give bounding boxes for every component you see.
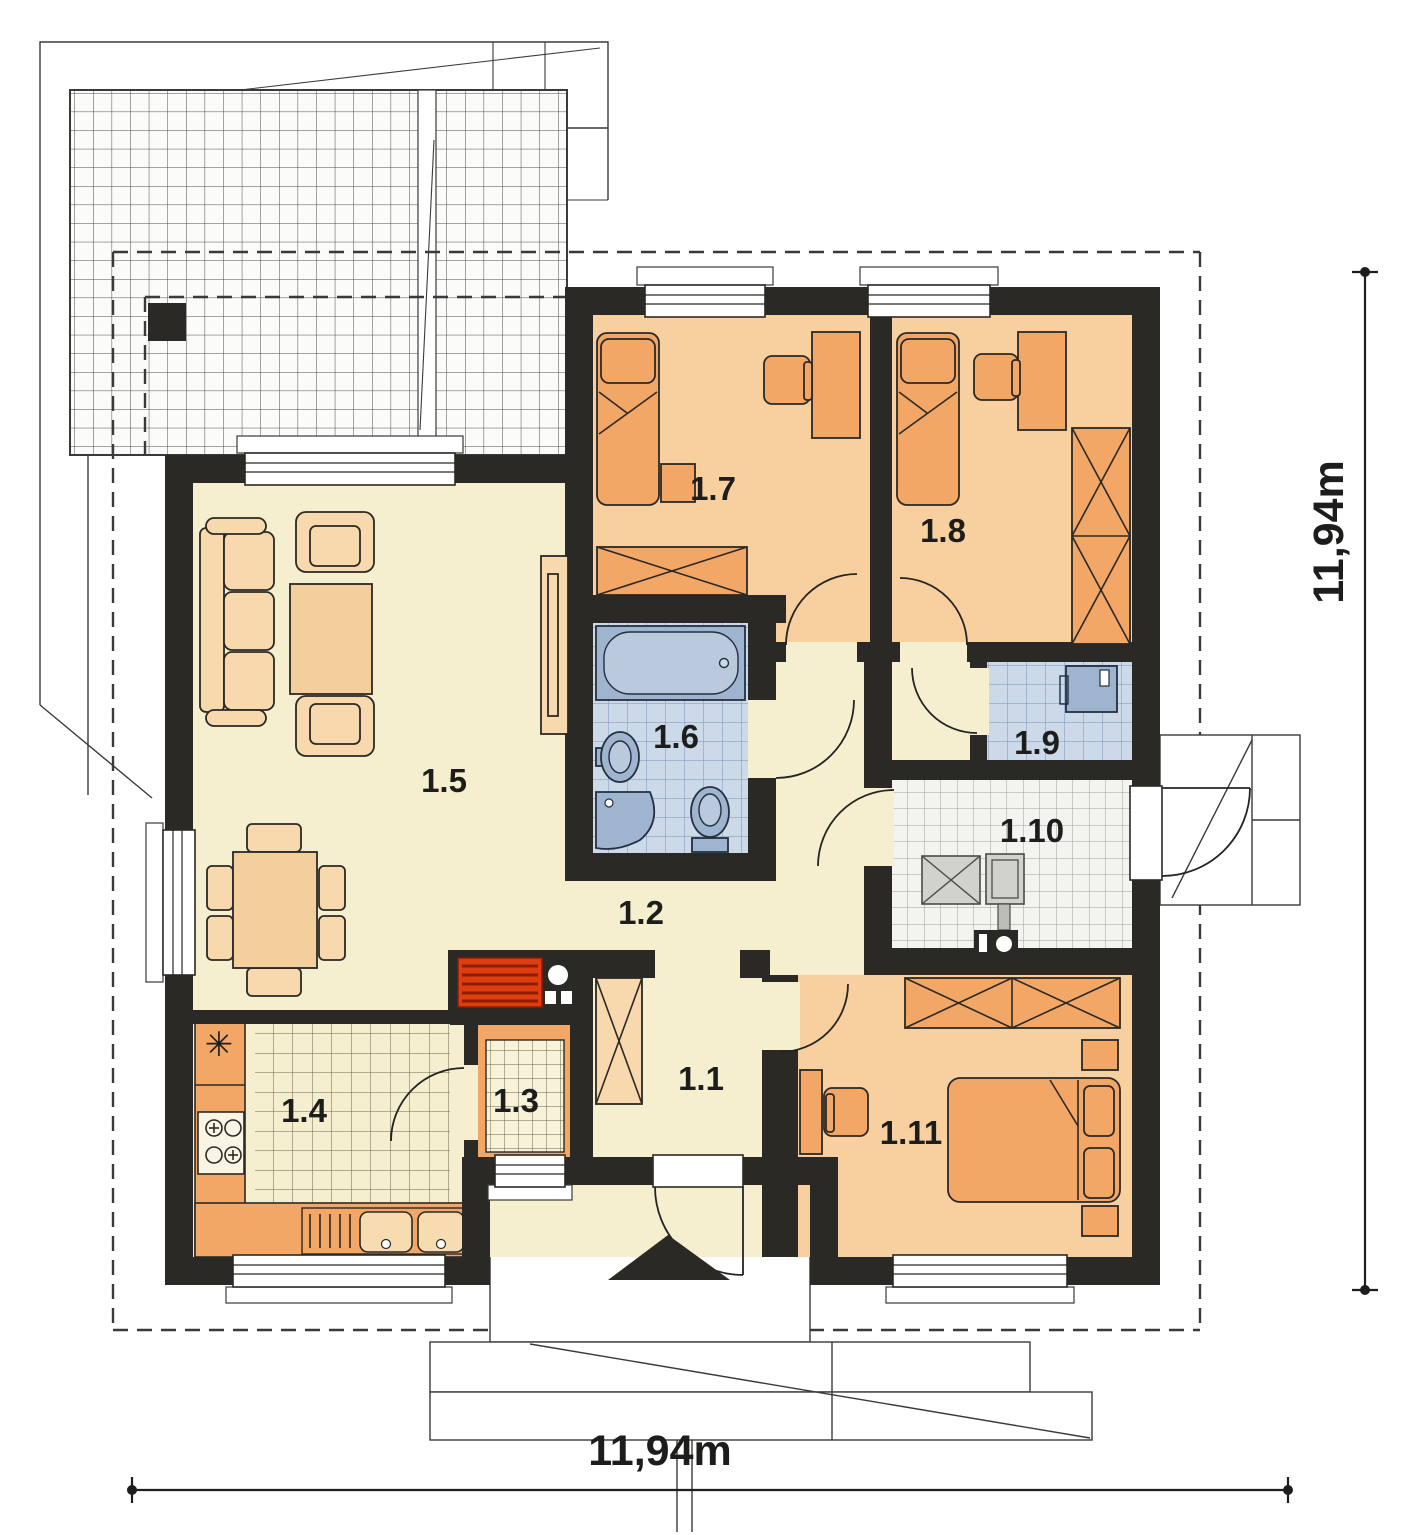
kitchen-window — [226, 1255, 452, 1303]
label-wc: 1.9 — [1014, 724, 1060, 761]
desk-chair-2 — [974, 354, 1020, 400]
bedroom3-window — [886, 1255, 1074, 1303]
label-bedroom1: 1.7 — [690, 470, 736, 507]
label-living: 1.5 — [421, 762, 467, 799]
armchair-bottom — [296, 696, 374, 756]
desk-chair-3 — [824, 1088, 868, 1136]
bathtub-icon — [596, 626, 745, 700]
entry-wardrobe — [596, 978, 642, 1104]
living-window — [237, 436, 463, 485]
desk-3 — [800, 1070, 822, 1154]
wardrobe-3 — [905, 978, 1120, 1028]
boiler-icon — [986, 854, 1024, 904]
porch-step-2 — [430, 1392, 1092, 1440]
armchair-top — [296, 512, 374, 572]
sink-icon — [302, 1208, 470, 1254]
flue-pipe — [998, 904, 1010, 930]
coffee-table — [290, 584, 372, 694]
terrace-column — [148, 303, 186, 341]
label-entry: 1.1 — [678, 1060, 724, 1097]
bed-double — [948, 1078, 1120, 1202]
bedroom1-window — [637, 267, 773, 317]
washer-icon — [922, 856, 980, 904]
bed-single-2 — [897, 333, 959, 505]
desk-chair-1 — [764, 356, 812, 404]
bedroom2-window — [860, 267, 998, 317]
toilet-icon — [691, 787, 729, 852]
pantry-window — [488, 1155, 572, 1200]
chimney-icon — [974, 930, 1018, 958]
dimension-height-label: 11,94m — [1305, 460, 1353, 603]
tv-cabinet — [541, 556, 568, 734]
wc-fixture — [1060, 666, 1117, 712]
dining-table — [233, 852, 317, 968]
label-bedroom3: 1.11 — [880, 1114, 942, 1151]
label-corridor: 1.2 — [618, 894, 664, 931]
floor-plan-drawing: ✳ — [0, 0, 1417, 1535]
label-bathroom: 1.6 — [653, 718, 699, 755]
nightstand-bottom — [1082, 1206, 1118, 1236]
label-utility: 1.10 — [1000, 812, 1064, 849]
dimension-width-label: 11,94m — [588, 1427, 731, 1475]
wardrobe-1 — [597, 547, 747, 595]
desk-1 — [812, 332, 860, 438]
desk-2 — [1018, 332, 1066, 430]
fridge-icon: ✳ — [205, 1025, 234, 1065]
dining-window — [146, 823, 195, 982]
label-pantry: 1.3 — [493, 1082, 539, 1119]
side-steps — [1160, 735, 1300, 905]
nightstand-top — [1082, 1040, 1118, 1070]
label-bedroom2: 1.8 — [920, 512, 966, 549]
bed-single-1 — [597, 333, 659, 505]
porch-step-1 — [430, 1342, 1030, 1392]
sofa — [200, 518, 274, 726]
floor-plan-canvas: ✳ — [0, 0, 1417, 1535]
stove-icon — [198, 1112, 244, 1174]
wardrobe-2 — [1072, 428, 1130, 644]
label-kitchen: 1.4 — [281, 1092, 328, 1129]
